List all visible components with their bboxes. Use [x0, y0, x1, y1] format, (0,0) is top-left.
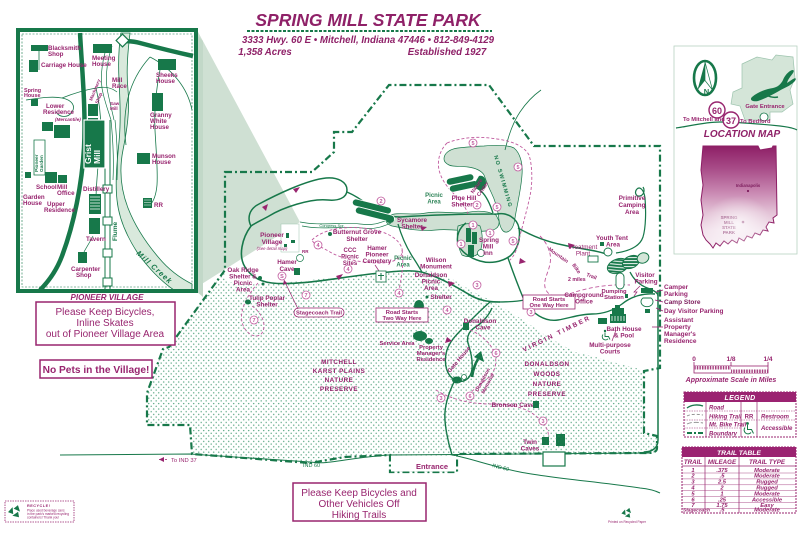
svg-text:Accessible: Accessible	[760, 426, 793, 432]
svg-text:Residence: Residence	[43, 109, 75, 116]
svg-text:1/8: 1/8	[726, 356, 735, 363]
svg-text:TRAIL TYPE: TRAIL TYPE	[749, 459, 786, 466]
svg-text:3: 3	[475, 283, 478, 289]
svg-text:Service Area: Service Area	[380, 341, 416, 347]
svg-text:RR: RR	[154, 202, 163, 209]
svg-text:1: 1	[471, 223, 474, 229]
svg-text:Area: Area	[625, 209, 639, 216]
svg-text:Parking: Parking	[664, 291, 688, 298]
svg-text:Shop: Shop	[48, 51, 64, 58]
svg-text:Mt. Bike Trail: Mt. Bike Trail	[709, 423, 747, 429]
svg-text:Established 1927: Established 1927	[408, 47, 487, 58]
svg-text:Shelter: Shelter	[256, 302, 278, 309]
svg-text:Stagecoach Trail: Stagecoach Trail	[296, 311, 342, 317]
svg-text:IND 60: IND 60	[303, 463, 320, 469]
svg-text:7: 7	[252, 318, 255, 324]
svg-text:6: 6	[468, 394, 471, 400]
svg-text:Mill: Mill	[110, 106, 118, 111]
svg-text:Village: Village	[262, 239, 283, 246]
svg-text:Station: Station	[604, 295, 624, 301]
svg-text:TRAIL: TRAIL	[684, 459, 702, 466]
svg-text:RECYCLE!: RECYCLE!	[27, 504, 50, 508]
svg-text:No Pets in the Village!: No Pets in the Village!	[43, 365, 150, 376]
svg-text:House: House	[150, 124, 169, 131]
svg-text:Residence: Residence	[664, 338, 697, 345]
svg-text:Area: Area	[606, 242, 620, 249]
svg-text:Office: Office	[575, 299, 593, 306]
svg-text:Congress Spr.: Congress Spr.	[319, 223, 344, 228]
svg-text:Monument: Monument	[420, 264, 453, 271]
svg-text:Picnic: Picnic	[425, 193, 443, 199]
svg-text:Road: Road	[709, 406, 724, 412]
svg-text:House: House	[156, 78, 175, 85]
svg-text:1: 1	[488, 231, 491, 237]
svg-text:Courts: Courts	[600, 349, 621, 356]
svg-text:3: 3	[529, 310, 532, 316]
svg-text:House: House	[23, 200, 42, 207]
svg-text:37: 37	[726, 116, 736, 126]
svg-text:Residence: Residence	[44, 207, 76, 214]
svg-text:1/4: 1/4	[763, 356, 772, 363]
svg-text:To Bedford: To Bedford	[740, 119, 771, 125]
svg-text:RR: RR	[745, 415, 754, 421]
svg-text:Hiking Trails: Hiking Trails	[332, 510, 386, 521]
svg-text:.5: .5	[720, 508, 726, 514]
svg-text:To Mitchell and: To Mitchell and	[683, 117, 725, 123]
svg-text:5: 5	[511, 239, 514, 245]
svg-text:Other Vehicles Off: Other Vehicles Off	[319, 499, 400, 510]
svg-text:Assistant: Assistant	[664, 317, 694, 324]
svg-text:Area: Area	[236, 287, 250, 294]
svg-text:Gate Entrance: Gate Entrance	[745, 104, 785, 110]
svg-text:out of Pioneer Village Area: out of Pioneer Village Area	[46, 329, 165, 340]
svg-text:PRESERVE: PRESERVE	[320, 386, 358, 393]
svg-text:Area: Area	[424, 285, 438, 292]
svg-text:Parking: Parking	[634, 279, 657, 286]
svg-text:Approximate Scale in Miles: Approximate Scale in Miles	[685, 377, 777, 384]
svg-text:5: 5	[495, 205, 498, 211]
svg-text:Day Visitor Parking: Day Visitor Parking	[664, 308, 724, 315]
svg-text:Primitive: Primitive	[619, 195, 646, 202]
svg-text:PRESERVE: PRESERVE	[528, 391, 566, 398]
svg-text:House: House	[152, 159, 171, 166]
svg-text:Shelter: Shelter	[451, 202, 473, 209]
svg-text:WOODS: WOODS	[534, 371, 561, 378]
svg-text:Residence: Residence	[417, 357, 447, 363]
svg-text:Mill: Mill	[92, 150, 102, 164]
svg-text:House: House	[92, 61, 111, 68]
svg-text:PIONEER VILLAGE: PIONEER VILLAGE	[71, 293, 145, 302]
svg-text:1: 1	[459, 242, 462, 248]
svg-text:Race: Race	[112, 83, 127, 90]
svg-text:60: 60	[712, 106, 722, 116]
svg-text:Two Way Here: Two Way Here	[383, 316, 423, 322]
svg-text:Pioneer: Pioneer	[260, 232, 284, 239]
svg-text:To IND 37: To IND 37	[171, 458, 197, 464]
svg-text:Shelter: Shelter	[346, 236, 368, 243]
svg-text:Moderate: Moderate	[754, 508, 781, 514]
svg-text:DONALDSON: DONALDSON	[524, 361, 569, 368]
svg-text:7: 7	[304, 293, 307, 299]
svg-text:KARST PLAINS: KARST PLAINS	[313, 368, 366, 375]
svg-text:Garden: Garden	[39, 155, 45, 172]
svg-text:RR: RR	[302, 249, 309, 254]
svg-text:3: 3	[439, 396, 442, 402]
svg-text:Manager's: Manager's	[664, 331, 696, 338]
svg-text:Distillery: Distillery	[83, 186, 110, 193]
svg-text:Tavern: Tavern	[86, 236, 106, 243]
svg-text:School: School	[36, 184, 57, 191]
svg-text:SPRING MILL STATE PARK: SPRING MILL STATE PARK	[255, 10, 482, 30]
svg-text:Butternut Grove: Butternut Grove	[333, 229, 382, 236]
svg-text:0: 0	[692, 356, 696, 363]
svg-text:3: 3	[541, 419, 544, 425]
svg-text:CCC: CCC	[344, 248, 358, 254]
svg-text:Shop: Shop	[76, 272, 92, 279]
svg-text:Please Keep Bicycles,: Please Keep Bicycles,	[56, 307, 155, 318]
svg-text:6: 6	[494, 351, 497, 357]
svg-text:NATURE: NATURE	[325, 377, 354, 384]
svg-text:Camper: Camper	[664, 284, 689, 291]
svg-text:House: House	[24, 93, 40, 99]
svg-text:Cave: Cave	[475, 325, 491, 332]
svg-text:Office: Office	[57, 190, 75, 197]
svg-text:LEGEND: LEGEND	[725, 395, 756, 402]
svg-text:MILEAGE: MILEAGE	[708, 459, 737, 466]
svg-text:Area: Area	[396, 263, 410, 269]
svg-text:2: 2	[475, 203, 478, 209]
svg-text:2: 2	[379, 199, 382, 205]
svg-text:Property: Property	[664, 324, 691, 331]
svg-text:Entrance: Entrance	[416, 462, 448, 471]
svg-text:Hamer: Hamer	[277, 259, 297, 266]
svg-text:Indianapolis: Indianapolis	[736, 183, 761, 188]
svg-text:& Pool: & Pool	[614, 333, 634, 340]
svg-text:Camp Store: Camp Store	[664, 299, 701, 306]
svg-text:N: N	[704, 87, 709, 96]
svg-text:5: 5	[471, 141, 474, 147]
svg-text:Boundary: Boundary	[709, 432, 738, 438]
svg-text:Printed on Recycled Paper: Printed on Recycled Paper	[608, 520, 647, 524]
svg-text:3333 Hwy. 60 E • Mitchell, Ind: 3333 Hwy. 60 E • Mitchell, Indiana 47446…	[242, 35, 495, 46]
svg-text:Area: Area	[427, 200, 441, 206]
svg-text:(Mercantile): (Mercantile)	[55, 117, 81, 122]
svg-text:Restroom: Restroom	[761, 415, 790, 421]
svg-text:MITCHELL: MITCHELL	[321, 359, 357, 366]
svg-text:LOCATION MAP: LOCATION MAP	[704, 129, 781, 140]
svg-text:NATURE: NATURE	[533, 381, 562, 388]
svg-text:Inline Skates: Inline Skates	[76, 318, 133, 329]
svg-text:TRAIL TABLE: TRAIL TABLE	[717, 450, 761, 457]
svg-text:Stagecoach: Stagecoach	[683, 508, 710, 514]
svg-text:1,358 Acres: 1,358 Acres	[238, 47, 292, 58]
svg-text:Flume: Flume	[112, 221, 119, 241]
svg-text:Carriage House: Carriage House	[41, 62, 87, 69]
svg-text:Please Keep Bicycles and: Please Keep Bicycles and	[301, 488, 417, 499]
svg-text:Camping: Camping	[619, 202, 646, 209]
svg-text:containers! Thank you!: containers! Thank you!	[27, 516, 59, 520]
svg-text:S: S	[280, 274, 284, 280]
svg-text:Picnic: Picnic	[394, 256, 412, 262]
svg-text:2 miles: 2 miles	[568, 277, 586, 283]
svg-text:Hiking Trail: Hiking Trail	[709, 415, 742, 421]
svg-text:Shelter: Shelter	[430, 294, 452, 301]
svg-text:Picnic: Picnic	[341, 255, 359, 261]
svg-text:(See detail map): (See detail map)	[257, 246, 288, 251]
svg-text:Bronson Cave: Bronson Cave	[492, 402, 535, 409]
svg-text:Cemetery: Cemetery	[363, 258, 392, 265]
svg-text:Inn: Inn	[483, 250, 493, 257]
svg-text:One Way Here: One Way Here	[529, 303, 569, 309]
svg-text:Caves: Caves	[521, 446, 540, 453]
svg-text:Shelter: Shelter	[401, 224, 423, 231]
svg-text:5: 5	[516, 165, 519, 171]
